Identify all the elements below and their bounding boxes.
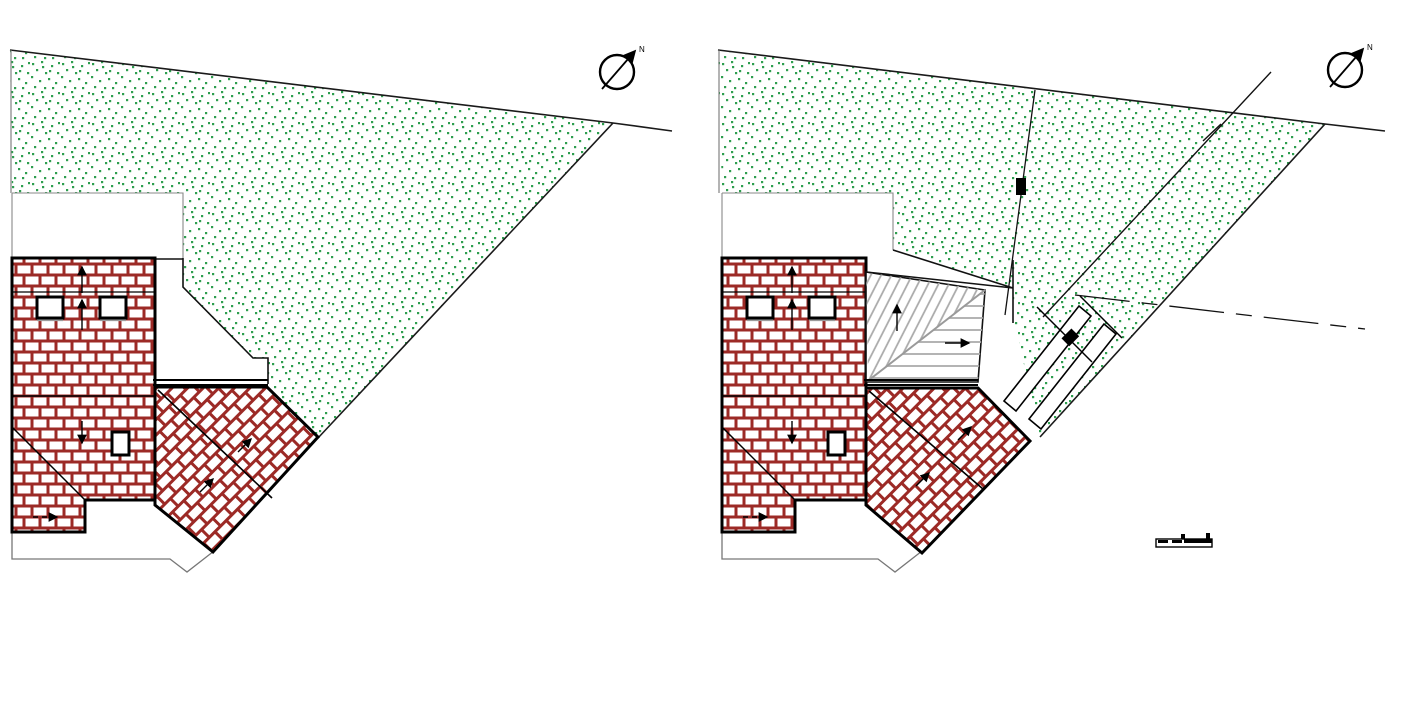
scale-bar: [1156, 533, 1212, 547]
chimney: [37, 297, 63, 318]
roof-wing: [155, 387, 318, 552]
chimney: [112, 432, 129, 455]
right-plan: N: [718, 43, 1385, 572]
chimney: [828, 432, 845, 455]
building-roof: [12, 258, 155, 532]
plot-boundary-bottom: [12, 532, 214, 572]
roof-wing: [866, 388, 1030, 553]
north-label: N: [639, 45, 645, 54]
chimney: [747, 297, 773, 318]
gate-marker: [1016, 178, 1026, 195]
north-arrow-icon: N: [1328, 43, 1373, 87]
north-arrow-icon: N: [600, 45, 645, 89]
site-plan-drawing: N: [0, 0, 1401, 701]
left-plan: N: [10, 45, 672, 572]
chimney: [100, 297, 126, 318]
chimney: [809, 297, 835, 318]
building-roof: [722, 258, 866, 532]
drawing-sheet: N: [0, 0, 1401, 701]
north-label: N: [1367, 43, 1373, 52]
plot-boundary-bottom: [722, 532, 922, 572]
